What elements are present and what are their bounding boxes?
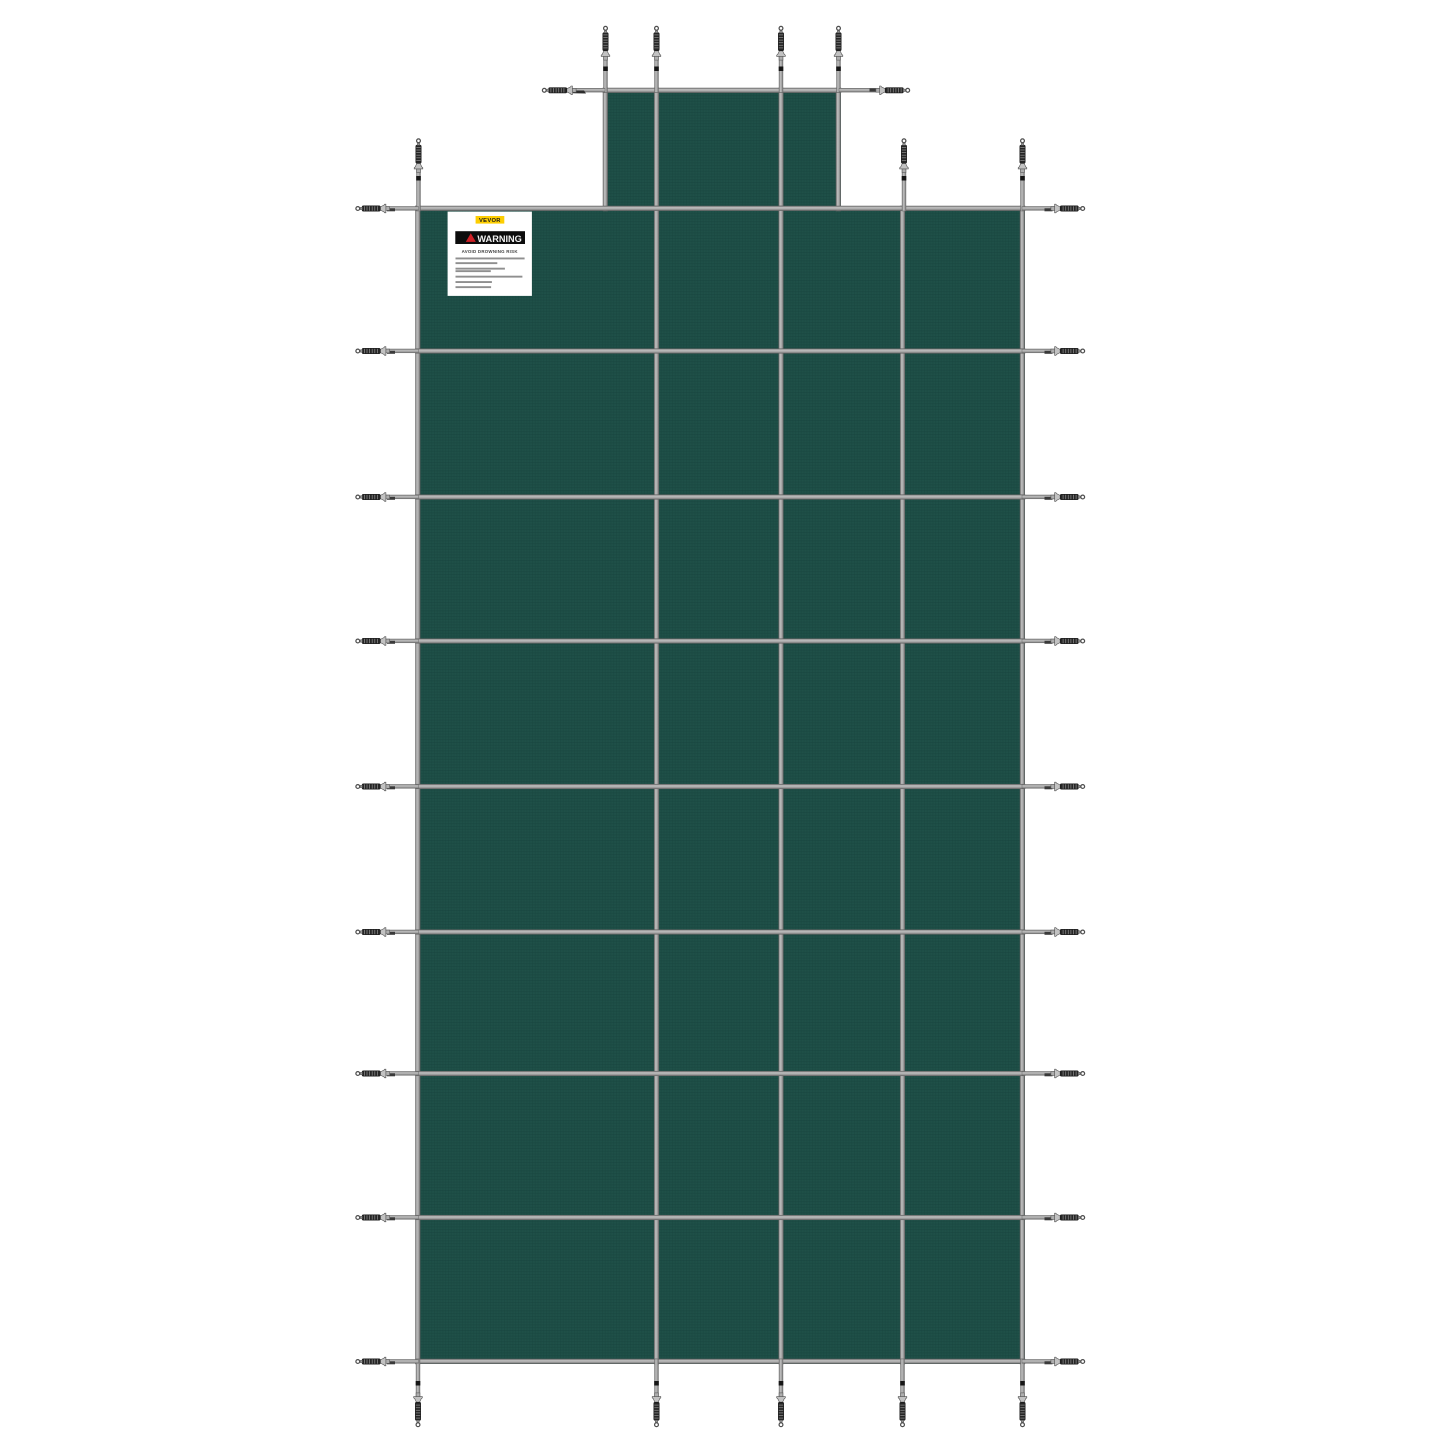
- svg-text:WARNING: WARNING: [477, 234, 521, 244]
- svg-text:AVOID DROWNING RISK: AVOID DROWNING RISK: [462, 249, 519, 254]
- svg-text:VEVOR: VEVOR: [479, 218, 501, 224]
